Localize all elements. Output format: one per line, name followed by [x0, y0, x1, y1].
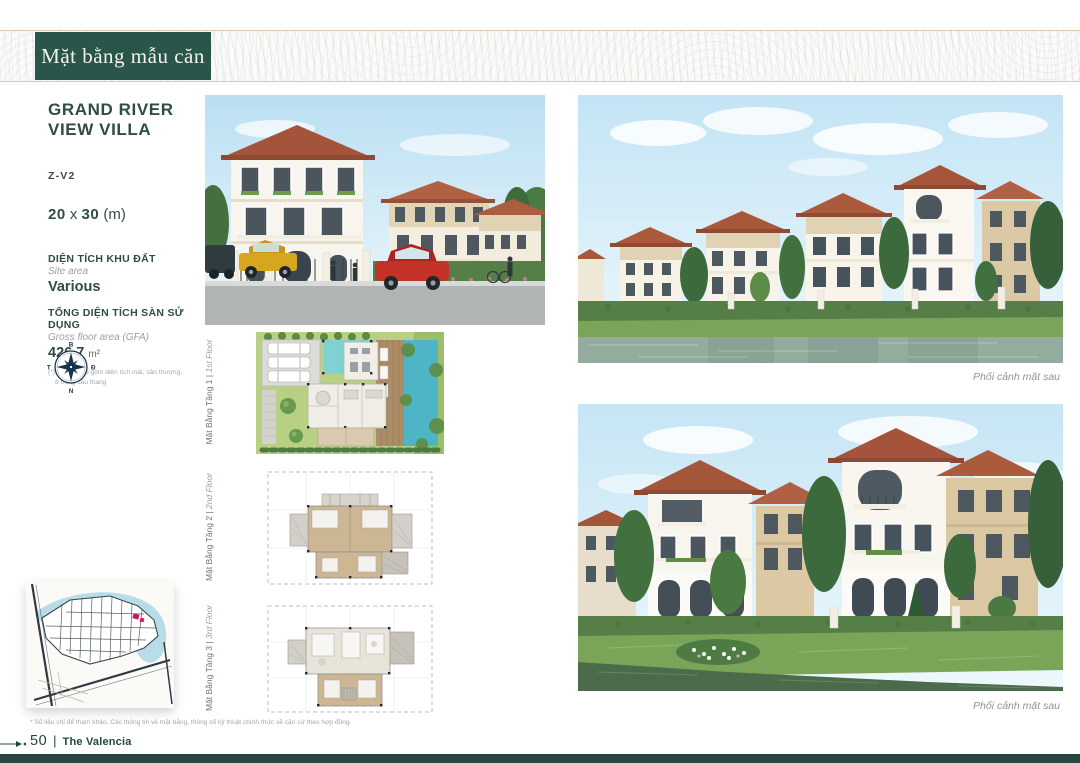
floor-plan-3-label: Mặt Bằng Tầng 3 | 3rd Floor [204, 598, 214, 718]
site-location-map [26, 582, 174, 708]
compass-rose-icon: B Đ N T [42, 338, 100, 396]
compass-south-label: N [69, 388, 74, 395]
unit-code: Z-V2 [48, 170, 200, 182]
page-number: 50 [30, 733, 47, 749]
floor-plan-2-label: Mặt Bằng Tầng 2 | 2nd Floor [204, 467, 214, 587]
site-area-value: Various [48, 279, 200, 295]
compass-west-label: T [47, 364, 51, 371]
header-pattern-band: Mặt bằng mẫu căn [0, 30, 1080, 82]
villa-street-render [205, 95, 545, 325]
render-caption-bottom: Phối cảnh mặt sau [810, 700, 1060, 712]
site-area-label-vi: DIỆN TÍCH KHU ĐẤT [48, 253, 200, 265]
floor-plan-3-image [262, 600, 438, 718]
site-area-section: DIỆN TÍCH KHU ĐẤT Site area Various [48, 253, 200, 295]
floor-plan-1-image [256, 332, 444, 454]
page-footnote: * Số liệu chỉ để tham khảo. Các thông ti… [30, 719, 351, 726]
section-ribbon: Mặt bằng mẫu căn [35, 32, 211, 80]
floor-plan-1-label: Mặt Bằng Tầng 1 | 1st Floor [204, 332, 214, 452]
page-number-line: 50 | The Valencia [30, 733, 132, 749]
page-number-separator: | [53, 733, 56, 748]
brochure-page: Mặt bằng mẫu căn GRAND RIVER VIEW VILLA … [0, 0, 1080, 763]
page-title: GRAND RIVER VIEW VILLA [48, 100, 200, 140]
section-title: Mặt bằng mẫu căn [41, 44, 205, 69]
compass-east-label: Đ [91, 364, 96, 371]
project-brand: The Valencia [63, 736, 132, 748]
floor-plan-2-image [262, 466, 438, 590]
gfa-label-vi: TỔNG DIỆN TÍCH SÀN SỬ DỤNG [48, 307, 200, 331]
compass-north-label: B [69, 342, 74, 349]
lot-dimensions: 20 x 30 (m) [48, 206, 200, 223]
villa-rear-render-bottom [578, 404, 1063, 691]
render-caption-top: Phối cảnh mặt sau [810, 371, 1060, 383]
site-area-label-en: Site area [48, 266, 200, 277]
arrow-decoration-icon [0, 739, 26, 749]
villa-rear-render-top [578, 95, 1063, 363]
bottom-green-bar [0, 754, 1080, 763]
